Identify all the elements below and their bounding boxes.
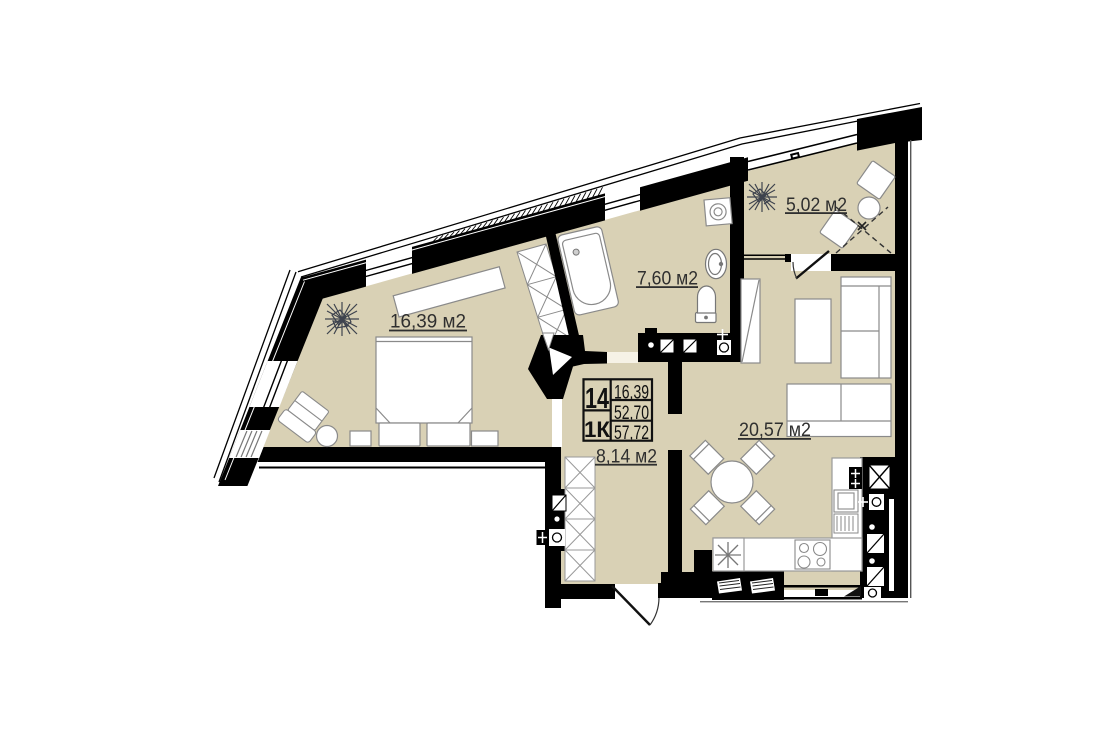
svg-text:20,57 м2: 20,57 м2 [739, 420, 811, 441]
svg-text:16,39 м2: 16,39 м2 [390, 312, 466, 333]
svg-text:14: 14 [585, 383, 609, 415]
svg-text:1К: 1К [584, 417, 611, 442]
svg-text:57,72: 57,72 [614, 423, 649, 444]
svg-text:52,70: 52,70 [614, 403, 649, 424]
svg-text:16,39: 16,39 [614, 383, 649, 404]
